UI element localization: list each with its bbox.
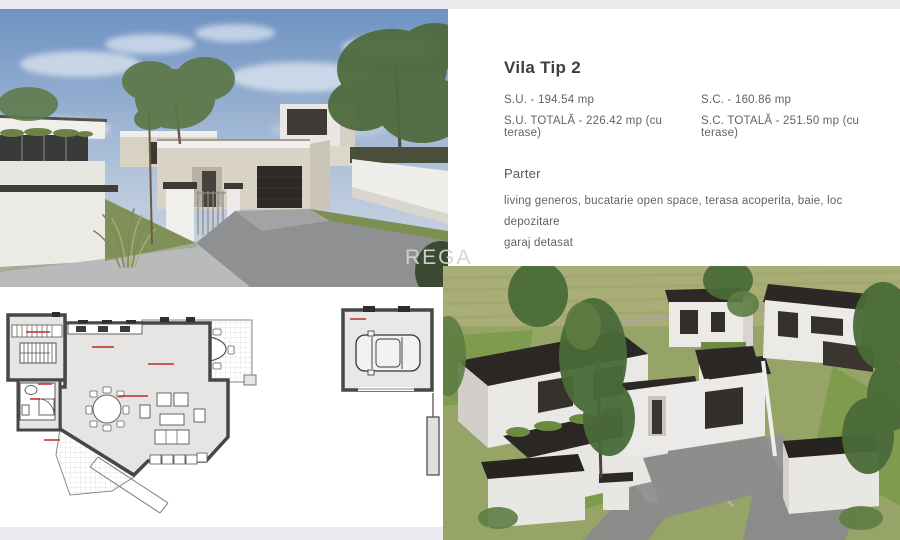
- left-house: [0, 115, 118, 267]
- entry-door: [202, 171, 216, 207]
- scale-bar: [427, 393, 439, 475]
- stairs: [12, 325, 62, 363]
- spec-sc: S.C. - 160.86 mp: [701, 94, 880, 106]
- aerial-gate-pillar: [599, 472, 633, 510]
- aerial-render-svg: [443, 266, 900, 540]
- spec-su: S.U. - 194.54 mp: [504, 94, 701, 106]
- exterior-render-svg: [0, 9, 448, 287]
- kitchen-counter: [68, 324, 142, 334]
- garage-label: [350, 318, 366, 320]
- presentation-page: Vila Tip 2 S.U. - 194.54 mp S.C. - 160.8…: [0, 0, 900, 540]
- info-panel: Vila Tip 2 S.U. - 194.54 mp S.C. - 160.8…: [448, 9, 900, 266]
- section-title: Parter: [504, 166, 880, 181]
- exterior-render-image: [0, 9, 448, 287]
- bottom-gray-strip: [0, 527, 443, 540]
- description-line-2: garaj detasat: [504, 233, 880, 254]
- car: [356, 331, 420, 375]
- page-title: Vila Tip 2: [504, 58, 880, 78]
- floor-plan-svg: [0, 287, 443, 527]
- description: living generos, bucatarie open space, te…: [504, 191, 880, 254]
- aerial-render-image: [443, 266, 900, 540]
- spec-sc-total: S.C. TOTALĂ - 251.50 mp (cu terase): [701, 115, 880, 139]
- top-gray-strip: [0, 0, 900, 9]
- spec-grid: S.U. - 194.54 mp S.C. - 160.86 mp S.U. T…: [504, 94, 880, 139]
- garage-door: [257, 166, 302, 208]
- garage-plan: [343, 306, 432, 391]
- spec-su-total: S.U. TOTALĂ - 226.42 mp (cu terase): [504, 115, 701, 139]
- description-line-1: living generos, bucatarie open space, te…: [504, 191, 880, 233]
- window-band: [150, 453, 207, 464]
- bathroom: [20, 383, 55, 420]
- floor-plan-image: [0, 287, 443, 527]
